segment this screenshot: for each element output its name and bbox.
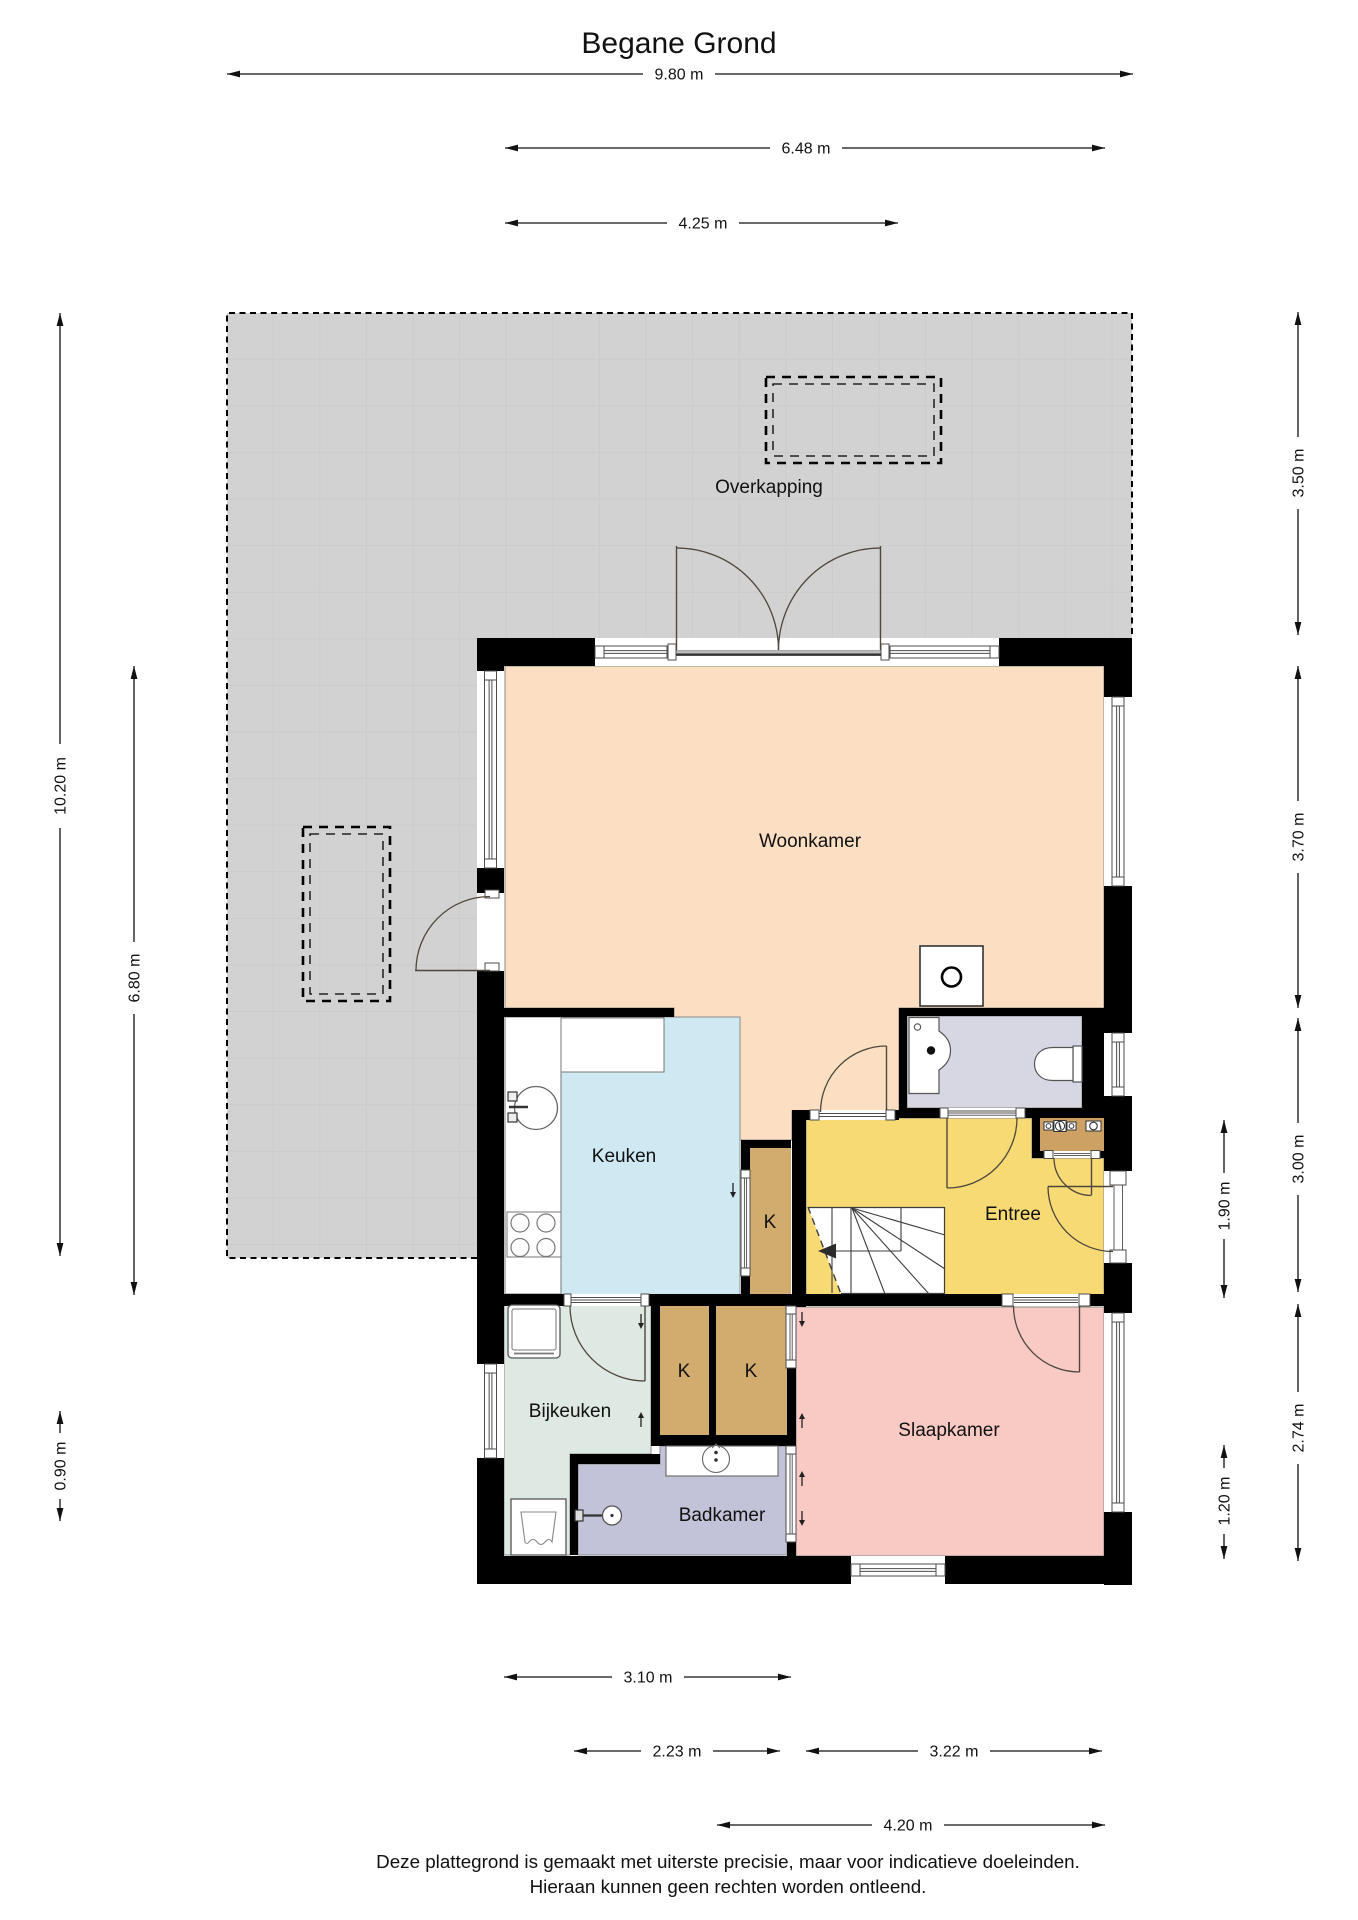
svg-text:3.10 m: 3.10 m	[624, 1670, 673, 1687]
svg-text:K: K	[764, 1212, 777, 1233]
svg-text:Slaapkamer: Slaapkamer	[898, 1420, 1000, 1441]
svg-text:K: K	[745, 1361, 758, 1382]
svg-text:Keuken: Keuken	[592, 1146, 656, 1167]
svg-text:Woonkamer: Woonkamer	[759, 831, 862, 852]
svg-text:Hieraan kunnen geen rechten wo: Hieraan kunnen geen rechten worden ontle…	[530, 1876, 927, 1897]
svg-text:4.25 m: 4.25 m	[679, 216, 728, 233]
svg-text:Overkapping: Overkapping	[715, 477, 823, 498]
svg-text:6.80 m: 6.80 m	[127, 954, 144, 1003]
svg-text:2.74 m: 2.74 m	[1291, 1404, 1308, 1453]
svg-text:4.20 m: 4.20 m	[884, 1818, 933, 1835]
svg-text:Begane Grond: Begane Grond	[581, 27, 776, 60]
svg-text:1.90 m: 1.90 m	[1217, 1182, 1234, 1231]
svg-text:3.50 m: 3.50 m	[1291, 449, 1308, 498]
svg-text:3.70 m: 3.70 m	[1291, 813, 1308, 862]
svg-text:10.20 m: 10.20 m	[53, 757, 70, 815]
svg-text:9.80 m: 9.80 m	[655, 67, 704, 84]
svg-text:Entree: Entree	[985, 1204, 1041, 1225]
svg-text:Badkamer: Badkamer	[679, 1505, 766, 1526]
svg-text:K: K	[678, 1361, 691, 1382]
svg-text:1.20 m: 1.20 m	[1217, 1477, 1234, 1526]
svg-text:6.48 m: 6.48 m	[782, 141, 831, 158]
svg-text:0.90 m: 0.90 m	[53, 1442, 70, 1491]
svg-text:2.23 m: 2.23 m	[653, 1744, 702, 1761]
svg-text:Bijkeuken: Bijkeuken	[529, 1401, 611, 1422]
svg-text:Deze plattegrond is gemaakt me: Deze plattegrond is gemaakt met uiterste…	[376, 1851, 1080, 1872]
svg-text:3.00 m: 3.00 m	[1291, 1135, 1308, 1184]
svg-text:3.22 m: 3.22 m	[930, 1744, 979, 1761]
